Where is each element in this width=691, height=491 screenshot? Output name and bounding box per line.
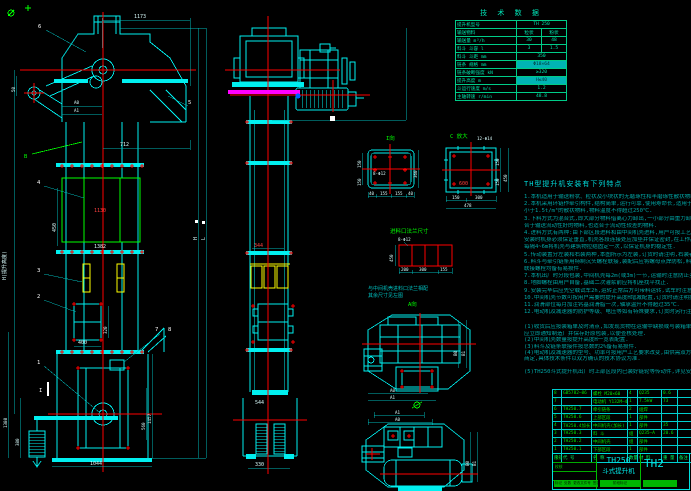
dim-712: 712 — [120, 142, 129, 148]
dim-1130: 1130 — [94, 208, 106, 214]
bom-cell: 5 — [553, 414, 562, 422]
tech-label: 斗运行速度 m/s — [456, 85, 517, 93]
bom-cell — [562, 398, 592, 406]
bom-cell: 7 — [553, 398, 562, 406]
table-row: 提升机型号TH 250 — [456, 21, 567, 29]
view-c-holes: 12-Φ14 — [477, 136, 493, 141]
revision-bar: 标记 处数 更改文件号 签名 日期 — [554, 480, 598, 487]
note-line: 1.本机适用于输送粉状、粒状及小块状的无磨琢性和半磨琢性散状物料,不宜一般 — [524, 194, 691, 201]
bom-table: 8GB5782—86螺栓 M20×604Q2350.6 7电动机 Y132M—4… — [552, 389, 691, 463]
dim-400: 400 — [78, 340, 87, 346]
leader-7: 7 — [155, 327, 158, 333]
leader-b: B — [24, 154, 28, 160]
table-row: 斗运行速度 m/s1.2 — [456, 85, 567, 93]
datum-marker — [412, 402, 422, 408]
note-line: 8.地脚螺栓由用户自备,基础二次灌浆前应将机座找平找正. — [524, 280, 691, 287]
view-c-title: C 放大 — [450, 132, 468, 140]
table-row: 3TH250.3料 斗组Q235—A20.6 — [553, 430, 691, 438]
table-row: 输送量 m³/h3048 — [456, 37, 567, 45]
view-c-rr: 450 — [503, 174, 508, 182]
view-c-inner: 600 — [459, 181, 468, 187]
tech-value: H≤40 — [517, 77, 567, 85]
bom-cell — [662, 406, 678, 414]
note-line: (5)TH250斗式提升机出厂时上部区段内已装好链轮等传动件,详见安装图. — [524, 369, 691, 375]
inlet-b3: 155 — [440, 267, 448, 272]
bom-cell — [662, 414, 678, 422]
bom-cell: TH250.7 — [562, 406, 592, 414]
bom-cell: 螺栓 M20×60 — [592, 390, 628, 398]
view-c-b1: 150 — [452, 195, 460, 200]
leader-3: 3 — [37, 268, 40, 274]
bom-cell: 牵引链条 — [592, 406, 628, 414]
dim-1044: 1044 — [90, 461, 102, 467]
grip-mark — [202, 221, 205, 224]
sign-label: 校核 — [555, 464, 563, 470]
tech-value: ≥320 — [517, 69, 567, 77]
highlight-line — [228, 90, 300, 94]
bom-cell: 料 斗 — [592, 430, 628, 438]
note-line: 小于1.5t/m³的散状物料,物料温度不得超过250℃. — [524, 208, 691, 215]
dim-344: 344 — [254, 243, 263, 249]
section-label-i: I — [39, 388, 42, 394]
inlet-h: 450 — [389, 254, 394, 262]
tech-label: 料斗 斗容 l — [456, 45, 517, 53]
tech-value: TH 250 — [517, 21, 567, 29]
plan1-b1: B1 — [461, 350, 466, 356]
note-line: 安装时机身必须保证垂直,机壳各段连接处应加垫并保证密封,在工作高度范围内 — [524, 237, 691, 244]
plan2-a0: A0 — [395, 417, 401, 422]
dim-330: 330 — [255, 462, 264, 468]
table-row: 提升高度 mH≤40 — [456, 77, 567, 85]
note-line: 3.下料方式为混合式,即大部分物料借离心力卸出,一小部分由重力卸料,因此既适 — [524, 216, 691, 223]
note-line: 联接螺栓均备有易损件. — [524, 266, 691, 273]
dim-320: 320 — [103, 326, 108, 334]
view-c-total: 478 — [464, 203, 472, 208]
parts-list: 8GB5782—86螺栓 M20×604Q2350.6 7电动机 Y132M—4… — [552, 389, 691, 463]
tech-value: Φ18×64 — [517, 61, 567, 69]
tech-value: 48 — [542, 37, 567, 45]
tech-value: 粒状 — [517, 29, 542, 37]
leader-4: 4 — [37, 180, 41, 186]
drawing-number: TH2 — [644, 457, 689, 470]
selection-dot — [296, 94, 301, 99]
tech-label: 主轴转速 r/min — [456, 93, 517, 101]
table-row: 6TH250.7牵引链条2组焊 — [553, 406, 691, 414]
bom-cell — [678, 438, 691, 446]
bom-cell: 4 — [553, 422, 562, 430]
bom-cell: TH250.3 — [562, 430, 592, 438]
dim-a1: A1 — [74, 108, 80, 113]
title-block: 设计 校核 标记 处数 更改文件号 签名 日期 TH250 斗式提升机 阶段标记… — [552, 453, 690, 490]
leader-5: 5 — [188, 100, 191, 106]
dim-a0: A0 — [74, 100, 80, 105]
table-row: 4TH250.4加长中间机壳(加长)1部件35 — [553, 422, 691, 430]
bom-cell — [662, 438, 678, 446]
bom-cell: 中间机壳 — [592, 438, 628, 446]
inlet-note2: 其余尺寸见左图 — [368, 292, 403, 299]
note-line: 12.电动机及减速器的防护等级、电压等如有特殊要求,订货时另行注明. — [524, 309, 691, 316]
leader-8: 8 — [168, 327, 171, 333]
tech-label: 链条破断强度 kN — [456, 69, 517, 77]
view-i-b2: 155 — [380, 191, 388, 196]
bom-cell: GB5782—86 — [562, 390, 592, 398]
table-row: 主轴转速 r/min48.8 — [456, 93, 567, 101]
title-block-number-zone: TH2 — [641, 454, 689, 489]
tech-value: 1.5 — [542, 45, 567, 53]
view-i-title: I向 — [386, 134, 395, 142]
leader-6: 6 — [38, 24, 41, 30]
number-bar — [643, 480, 677, 487]
stage-bar: 阶段标记 — [600, 480, 640, 487]
dim-lift-height: H(提升高度) — [1, 251, 8, 280]
tech-data-panel: 技 术 数 据 提升机型号TH 250 输送物料粒状粉状 输送量 m³/h304… — [455, 8, 567, 101]
dim-h-label: H — [193, 237, 199, 240]
bom-cell: 部件 — [638, 414, 662, 422]
view-i-l2: 150 — [357, 178, 362, 186]
note-line: 2.本机采用环链作牵引构件,结构简单,运行可靠,使用寿命长,适用于提升堆积密度 — [524, 201, 691, 208]
tech-label: 输送量 m³/h — [456, 37, 517, 45]
tech-value: 350 — [517, 53, 567, 61]
note-line: 合于输送流动性好的物料,也适合于流动性较差的物料. — [524, 223, 691, 230]
bom-cell: 上部区段 — [592, 414, 628, 422]
note-line: 每隔4~6m将机壳与建筑物拉结固定一次,以保证机身的稳定性. — [524, 244, 691, 251]
bom-cell: 3 — [553, 430, 562, 438]
plan1-a1: A1 — [390, 395, 396, 400]
tech-table-title: 技 术 数 据 — [455, 8, 567, 18]
plan1-a0: A0 — [390, 388, 396, 393]
view-i-b1: 40 — [369, 191, 375, 196]
tech-value: 30 — [517, 37, 542, 45]
title-block-rev-zone: 设计 校核 标记 处数 更改文件号 签名 日期 — [553, 454, 597, 489]
note-line: 10.中间机壳节数可按用户需要的提升高度H增减配置,订货时请注明提升高度H. — [524, 295, 691, 302]
table-row: 2TH250.2中间机壳组部件 — [553, 438, 691, 446]
bom-cell — [678, 422, 691, 430]
bom-cell: 7.5kW — [638, 398, 662, 406]
dim-l-label: L — [201, 237, 207, 240]
view-c-r2: 150 — [495, 178, 500, 186]
note-line: 6.料斗与牵引链条用特制沉头螺栓联接,装配后应将螺母点焊防松,料斗及 — [524, 259, 691, 266]
bom-cell: 组 — [628, 438, 638, 446]
title-block-name-zone: TH250 斗式提升机 阶段标记 — [597, 454, 641, 489]
notes-title: TH型提升机安装有下列特点 — [524, 179, 691, 189]
table-row: 料斗 斗距 mm350 — [456, 53, 567, 61]
plan2-a1: A1 — [395, 410, 401, 415]
dim-544: 544 — [255, 400, 264, 406]
dim-380: 380 — [15, 438, 20, 446]
dim-1380: 1380 — [3, 417, 8, 428]
plan2-b0: B0 — [465, 460, 470, 466]
note-line: 11.润滑部位每月加注钙基润滑脂一次,轴承温升不得超过35℃. — [524, 302, 691, 309]
view-i-holes: 8-Φ12 — [373, 171, 386, 176]
note-line: 9.安装完毕后应先空载试车2h,运转正常后方可带料运转,试车时注意调整链条张紧度… — [524, 288, 691, 295]
inlet-flange-detail — [399, 245, 452, 266]
bom-cell: Q235 — [638, 390, 662, 398]
inlet-title: 进料口法兰尺寸 — [390, 227, 429, 235]
bom-cell — [678, 430, 691, 438]
bom-cell: 部件 — [638, 438, 662, 446]
note-line: 7.本机出厂时分段包装,中间机壳每2m(或3m)一节,运输时注意防止变形. — [524, 273, 691, 280]
cad-canvas: 1173 712 1130 1382 400 1044 A0 A1 450 56… — [0, 0, 691, 491]
inlet-b2: 300 — [419, 267, 427, 272]
product-name: 斗式提升机 — [597, 465, 640, 475]
bom-cell: 73 — [662, 398, 678, 406]
tech-label: 料斗 斗距 mm — [456, 53, 517, 61]
table-row: 8GB5782—86螺栓 M20×604Q2350.6 — [553, 390, 691, 398]
grip-mark — [330, 116, 335, 121]
view-c-b2: 300 — [475, 195, 483, 200]
table-row: 料斗 斗容 l31.5 — [456, 45, 567, 53]
table-row: 输送物料粒状粉状 — [456, 29, 567, 37]
front-view — [28, 16, 188, 467]
tech-label: 链条 规格 mm — [456, 61, 517, 69]
bom-cell: 6 — [553, 406, 562, 414]
tech-value: 48.8 — [517, 93, 567, 101]
tech-value: 粉状 — [542, 29, 567, 37]
bom-cell: TH250.2 — [562, 438, 592, 446]
table-row: 5TH250.6上部区段1部件 — [553, 414, 691, 422]
bom-cell: Q235—A — [638, 430, 662, 438]
inlet-note1: 与中间机壳进料口法兰相配 — [368, 285, 428, 292]
bom-cell: 1 — [628, 398, 638, 406]
bom-cell: 部件 — [638, 422, 662, 430]
bom-cell: 2 — [553, 438, 562, 446]
tech-table: 提升机型号TH 250 输送物料粒状粉状 输送量 m³/h3048 料斗 斗容 … — [455, 20, 567, 101]
dim-1173: 1173 — [134, 14, 146, 20]
note-line: 4.进料方式有两种:由下部区段进料和由中间机壳进料,用户可按工艺布置任选其一; — [524, 230, 691, 237]
bom-cell: 1 — [628, 414, 638, 422]
sign-label: 设计 — [555, 455, 563, 461]
view-i-b3: 155 — [395, 191, 403, 196]
dim-450: 450 — [52, 223, 58, 232]
table-row: 链条破断强度 kN≥320 — [456, 69, 567, 77]
grip-mark — [195, 220, 198, 223]
a-view-label: A向 — [408, 300, 417, 308]
dim-50: 50 — [11, 86, 16, 92]
note-line: 5.传动装置分左装和右装两种,本图所示为左装,订货时请注明,右装者与此相反. — [524, 252, 691, 259]
view-c-r1: 150 — [495, 158, 500, 166]
tech-label: 输送物料 — [456, 29, 517, 37]
bom-cell: TH250.6 — [562, 414, 592, 422]
note-line: (1)收货后应按装箱单及时清点,如发现货物在运输中缺损或与装箱单不符时, — [524, 324, 691, 330]
bom-cell: 中间机壳(加长) — [592, 422, 628, 430]
plan1-b0: B0 — [453, 350, 458, 356]
bom-cell — [678, 390, 691, 398]
bom-cell: 组 — [628, 430, 638, 438]
bom-cell: 4 — [628, 390, 638, 398]
front-buckets — [83, 264, 124, 292]
detail-i-centerlines — [362, 144, 420, 194]
bom-cell: 20.6 — [662, 430, 678, 438]
view-i-right: 360 — [413, 170, 418, 178]
table-row: 链条 规格 mmΦ18×64 — [456, 61, 567, 69]
model-number: TH250 — [597, 456, 640, 465]
notes-block: TH型提升机安装有下列特点 1.本机适用于输送粉状、粒状及小块状的无磨琢性和半磨… — [524, 179, 691, 375]
bom-cell: 35 — [662, 422, 678, 430]
tech-label: 提升机型号 — [456, 21, 517, 29]
bom-cell — [678, 414, 691, 422]
bom-cell: 组焊 — [638, 406, 662, 414]
dim-1382: 1382 — [94, 244, 106, 250]
table-row: 7电动机 Y132M—417.5kW73 — [553, 398, 691, 406]
bom-cell: 1 — [628, 422, 638, 430]
plan2-b1: B1 — [472, 460, 477, 466]
leader-1: 1 — [37, 360, 40, 366]
tech-value: 1.2 — [517, 85, 567, 93]
bom-cell: 2 — [628, 406, 638, 414]
inlet-holes: 8-Φ12 — [398, 237, 411, 242]
bom-cell — [678, 398, 691, 406]
plan-view-bottom — [362, 412, 477, 491]
plan-view-top — [364, 315, 470, 400]
bom-cell — [678, 406, 691, 414]
bom-cell: 0.6 — [662, 390, 678, 398]
leader-2: 2 — [37, 294, 40, 300]
view-i-l1: 150 — [357, 160, 362, 168]
tech-label: 提升高度 m — [456, 77, 517, 85]
bom-cell: 电动机 Y132M—4 — [592, 398, 628, 406]
bom-cell: 8 — [553, 390, 562, 398]
inlet-b1: 200 — [401, 267, 409, 272]
dim-560: 560 — [141, 422, 146, 430]
tech-value: 3 — [517, 45, 542, 53]
bom-cell: TH250.4加长 — [562, 422, 592, 430]
view-i-b4: 40 — [408, 191, 414, 196]
dim-1457: 1457 — [147, 413, 152, 424]
plan-bottom-centerlines — [366, 434, 478, 474]
